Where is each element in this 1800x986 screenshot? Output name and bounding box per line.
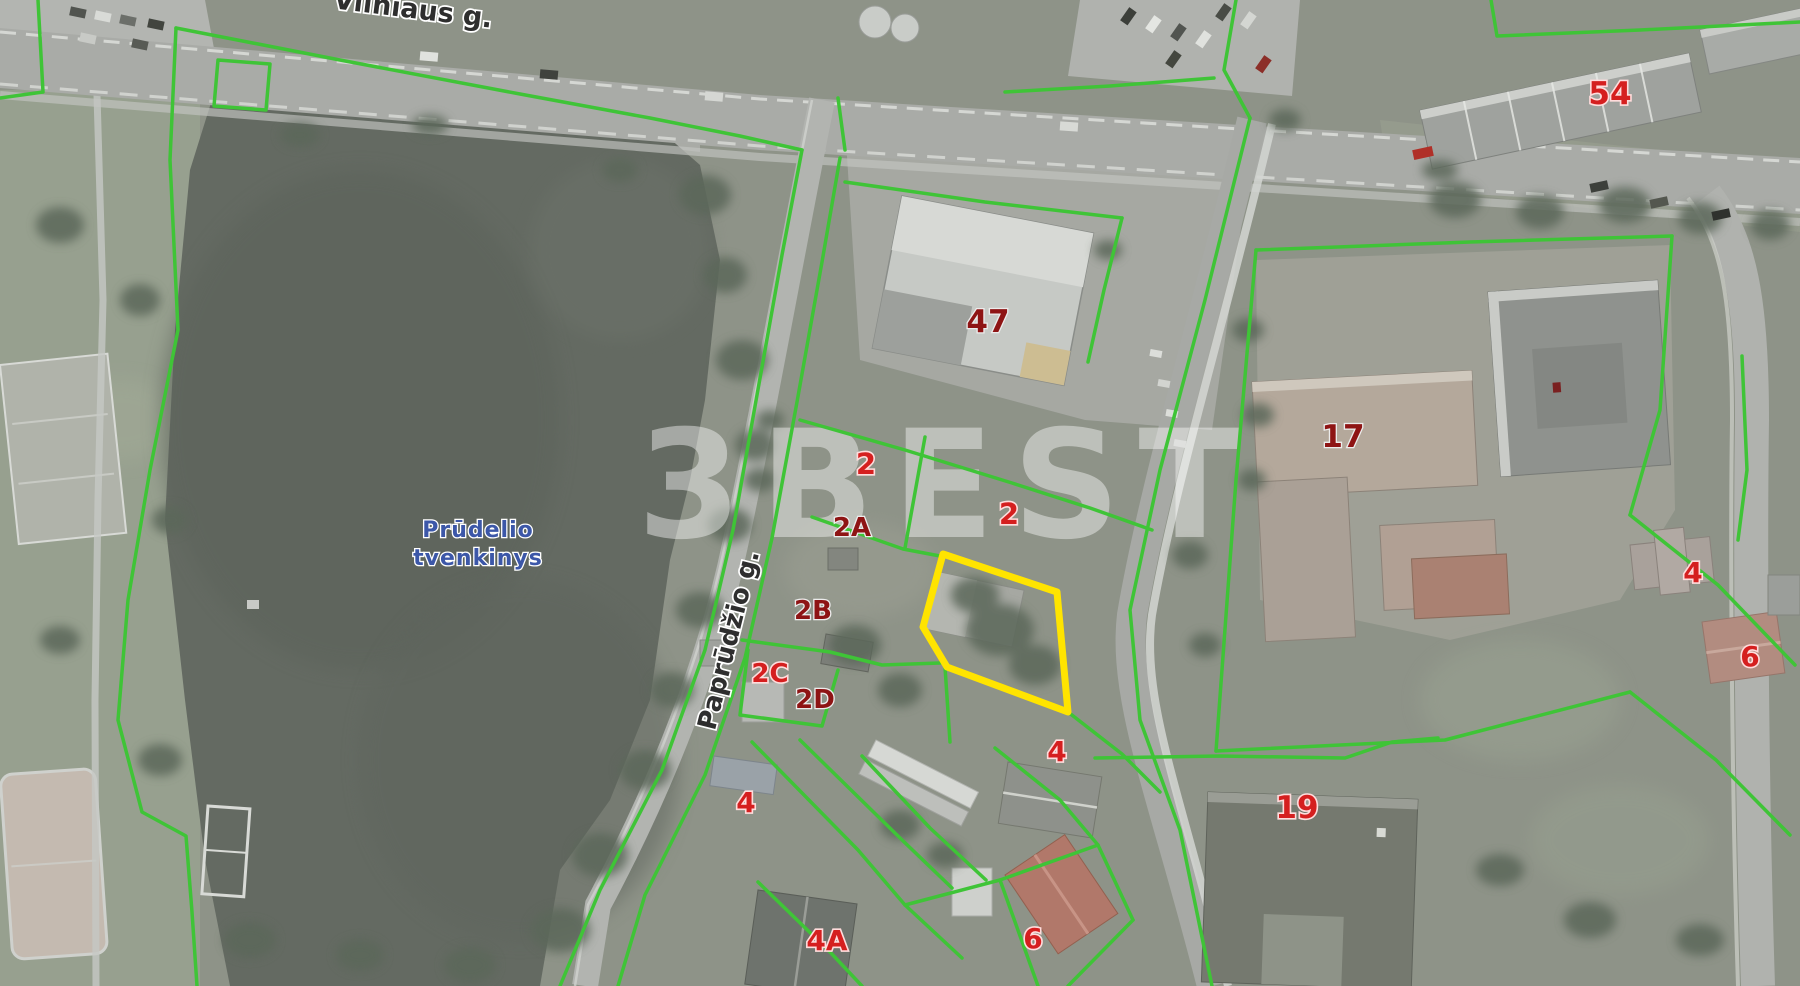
shed-east — [1768, 575, 1800, 615]
sport-court-1 — [0, 354, 126, 544]
grass-patch — [1530, 785, 1710, 895]
parcel-number-label: 4 — [1683, 556, 1702, 589]
parcel-number-label: 6 — [1740, 640, 1759, 673]
waterbody-name-label: Prūdelio — [422, 518, 534, 543]
grass-patch — [1420, 640, 1620, 760]
parcel-number-label: 2A — [833, 513, 871, 543]
parcel-number-label: 2 — [856, 447, 876, 481]
tank — [891, 14, 919, 42]
parcel-number-label: 2C — [751, 659, 788, 689]
parcel-number-label: 2 — [999, 497, 1019, 531]
parcel-number-label: 2B — [794, 596, 832, 626]
parcel-number-label: 47 — [966, 304, 1009, 340]
parcel-number-label: 6 — [1023, 922, 1042, 955]
parcel-number-label: 4 — [736, 786, 755, 819]
parcel-number-label: 4A — [806, 924, 847, 957]
pier — [247, 600, 259, 609]
parcel-number-label: 19 — [1275, 790, 1318, 826]
aerial-map[interactable]: 3BEST Vilniaus g.Paprūdžio g.Prūdeliotve… — [0, 0, 1800, 986]
sport-court-2 — [0, 768, 108, 959]
map-viewport[interactable]: 3BEST Vilniaus g.Paprūdžio g.Prūdeliotve… — [0, 0, 1800, 986]
parcel-number-label: 54 — [1588, 76, 1631, 112]
parcel-number-label: 4 — [1047, 735, 1066, 768]
parcel-number-label: 2D — [795, 685, 835, 715]
waterbody-name-label: tvenkinys — [413, 546, 543, 571]
parcel-number-label: 17 — [1321, 419, 1364, 455]
building-gym — [1488, 280, 1670, 476]
tank — [859, 6, 891, 38]
